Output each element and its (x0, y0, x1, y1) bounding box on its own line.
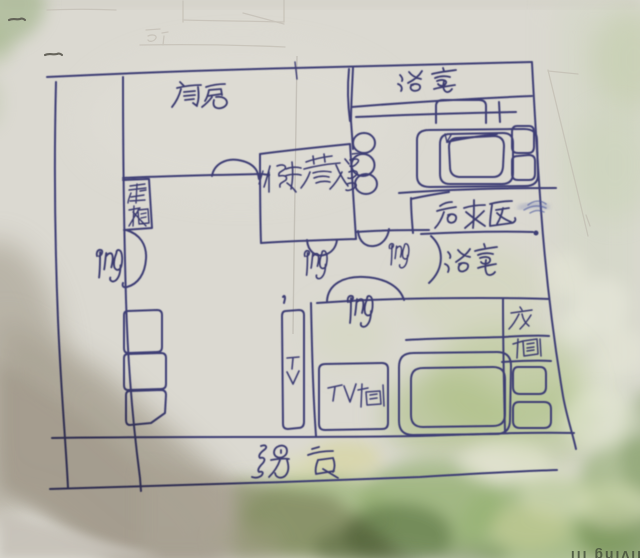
svg-text:living lll: living lll (569, 548, 640, 558)
